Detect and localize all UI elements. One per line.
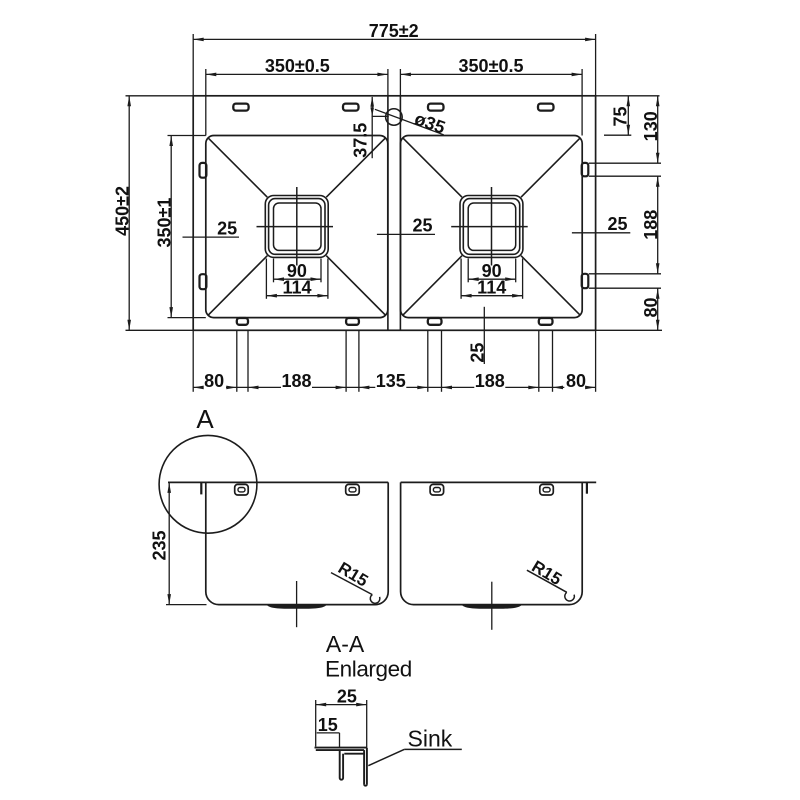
svg-text:80: 80 [566, 371, 586, 391]
svg-text:188: 188 [475, 371, 505, 391]
svg-text:Enlarged: Enlarged [325, 657, 412, 682]
svg-text:188: 188 [281, 371, 311, 391]
svg-text:350±0.5: 350±0.5 [265, 56, 330, 76]
svg-text:80: 80 [641, 297, 661, 317]
svg-text:114: 114 [477, 277, 506, 297]
svg-text:75: 75 [611, 106, 631, 126]
svg-text:130: 130 [641, 111, 661, 141]
svg-text:350±0.5: 350±0.5 [459, 56, 524, 76]
svg-text:350±1: 350±1 [154, 198, 174, 248]
svg-text:25: 25 [337, 686, 357, 706]
svg-text:80: 80 [204, 371, 224, 391]
svg-text:ø35: ø35 [412, 108, 448, 137]
svg-text:775±2: 775±2 [369, 21, 419, 41]
svg-text:450±2: 450±2 [112, 186, 132, 236]
svg-text:R15: R15 [335, 558, 372, 590]
svg-text:114: 114 [282, 277, 311, 297]
svg-text:25: 25 [217, 218, 237, 238]
svg-text:25: 25 [412, 216, 432, 236]
svg-text:Sink: Sink [408, 725, 453, 751]
svg-text:R15: R15 [528, 557, 565, 589]
svg-text:A-A: A-A [326, 631, 365, 657]
svg-text:25: 25 [467, 343, 487, 363]
svg-text:37.5: 37.5 [351, 123, 371, 158]
svg-text:135: 135 [376, 371, 406, 391]
svg-text:235: 235 [150, 530, 170, 560]
svg-text:15: 15 [318, 715, 338, 735]
svg-text:25: 25 [607, 214, 627, 234]
svg-text:188: 188 [641, 210, 661, 240]
svg-text:A: A [196, 404, 214, 434]
